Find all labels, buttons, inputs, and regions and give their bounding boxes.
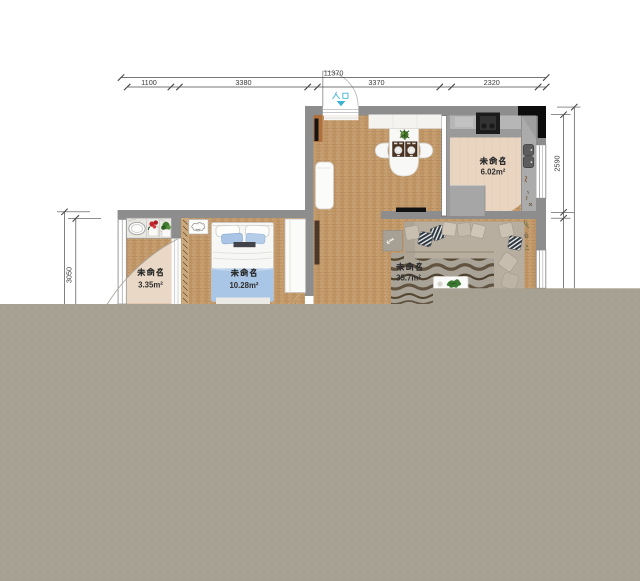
svg-text:3380: 3380 xyxy=(235,78,251,87)
svg-text:3370: 3370 xyxy=(368,78,384,87)
svg-text:10.28m²: 10.28m² xyxy=(229,281,258,290)
svg-text:3.35m²: 3.35m² xyxy=(138,281,163,290)
svg-text:6.02m²: 6.02m² xyxy=(481,168,506,177)
svg-text:35.7m²: 35.7m² xyxy=(396,274,421,283)
svg-text:3050: 3050 xyxy=(65,267,74,283)
svg-text:2590: 2590 xyxy=(553,155,562,171)
svg-text:2320: 2320 xyxy=(484,78,500,87)
svg-text:1100: 1100 xyxy=(141,78,157,87)
svg-text:11370: 11370 xyxy=(324,69,344,78)
